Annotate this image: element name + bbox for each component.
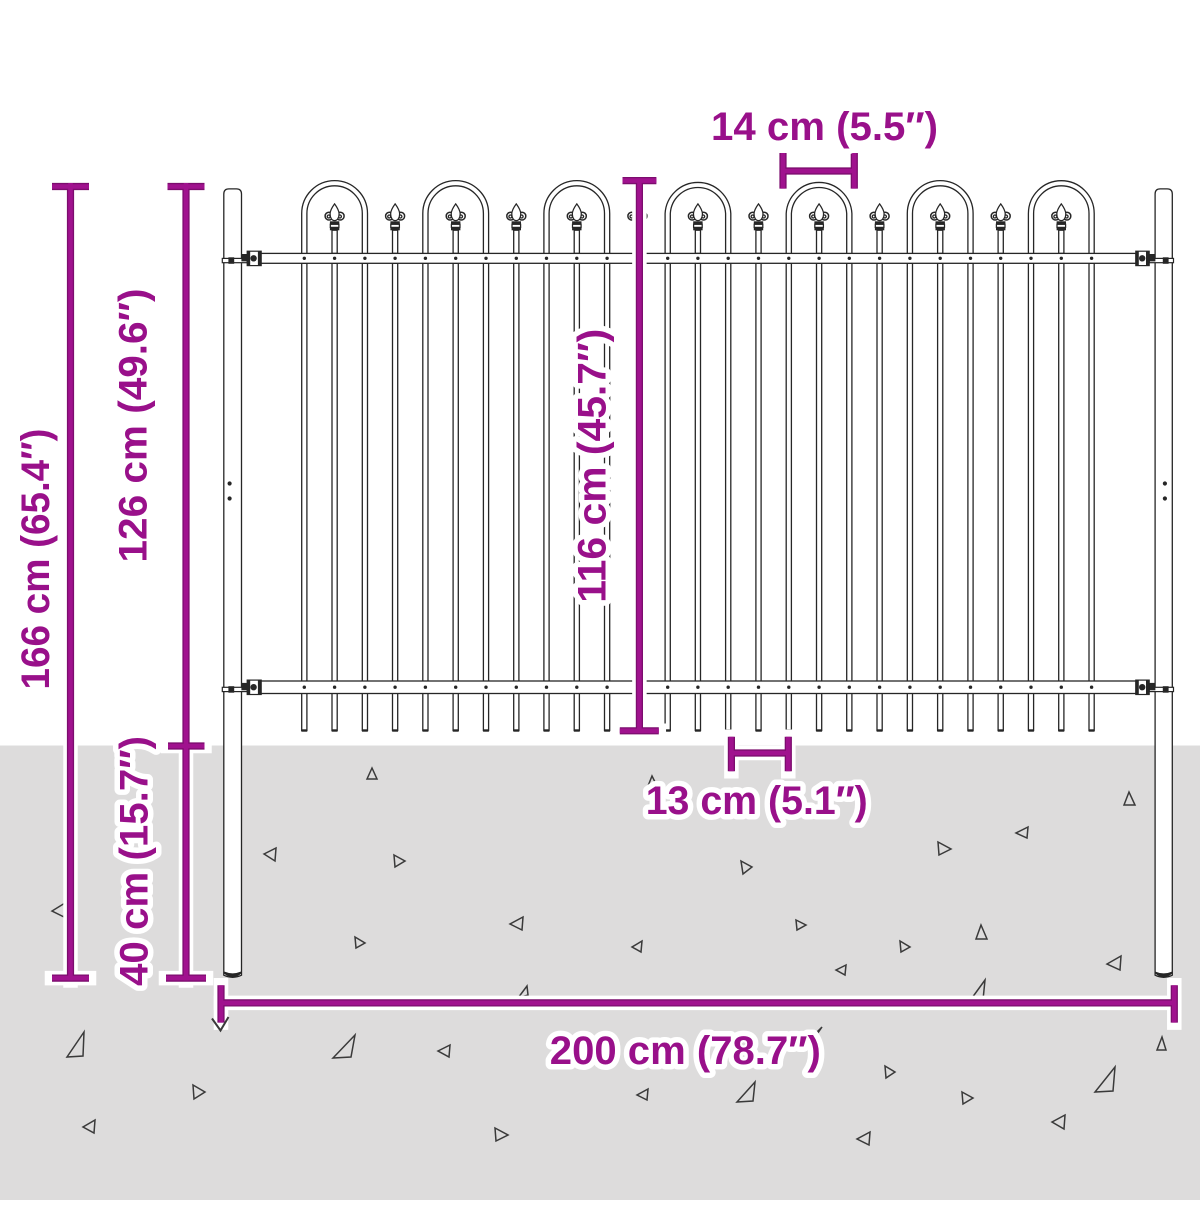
svg-text:40 cm (15.7″): 40 cm (15.7″) — [113, 736, 157, 986]
svg-text:200 cm (78.7″): 200 cm (78.7″) — [550, 1029, 821, 1073]
svg-text:13 cm (5.1″): 13 cm (5.1″) — [646, 779, 868, 823]
svg-text:116 cm (45.7″): 116 cm (45.7″) — [571, 329, 615, 603]
svg-text:166 cm (65.4″): 166 cm (65.4″) — [14, 429, 58, 690]
svg-text:126 cm (49.6″): 126 cm (49.6″) — [112, 289, 156, 563]
svg-text:14 cm (5.5″): 14 cm (5.5″) — [711, 105, 938, 149]
